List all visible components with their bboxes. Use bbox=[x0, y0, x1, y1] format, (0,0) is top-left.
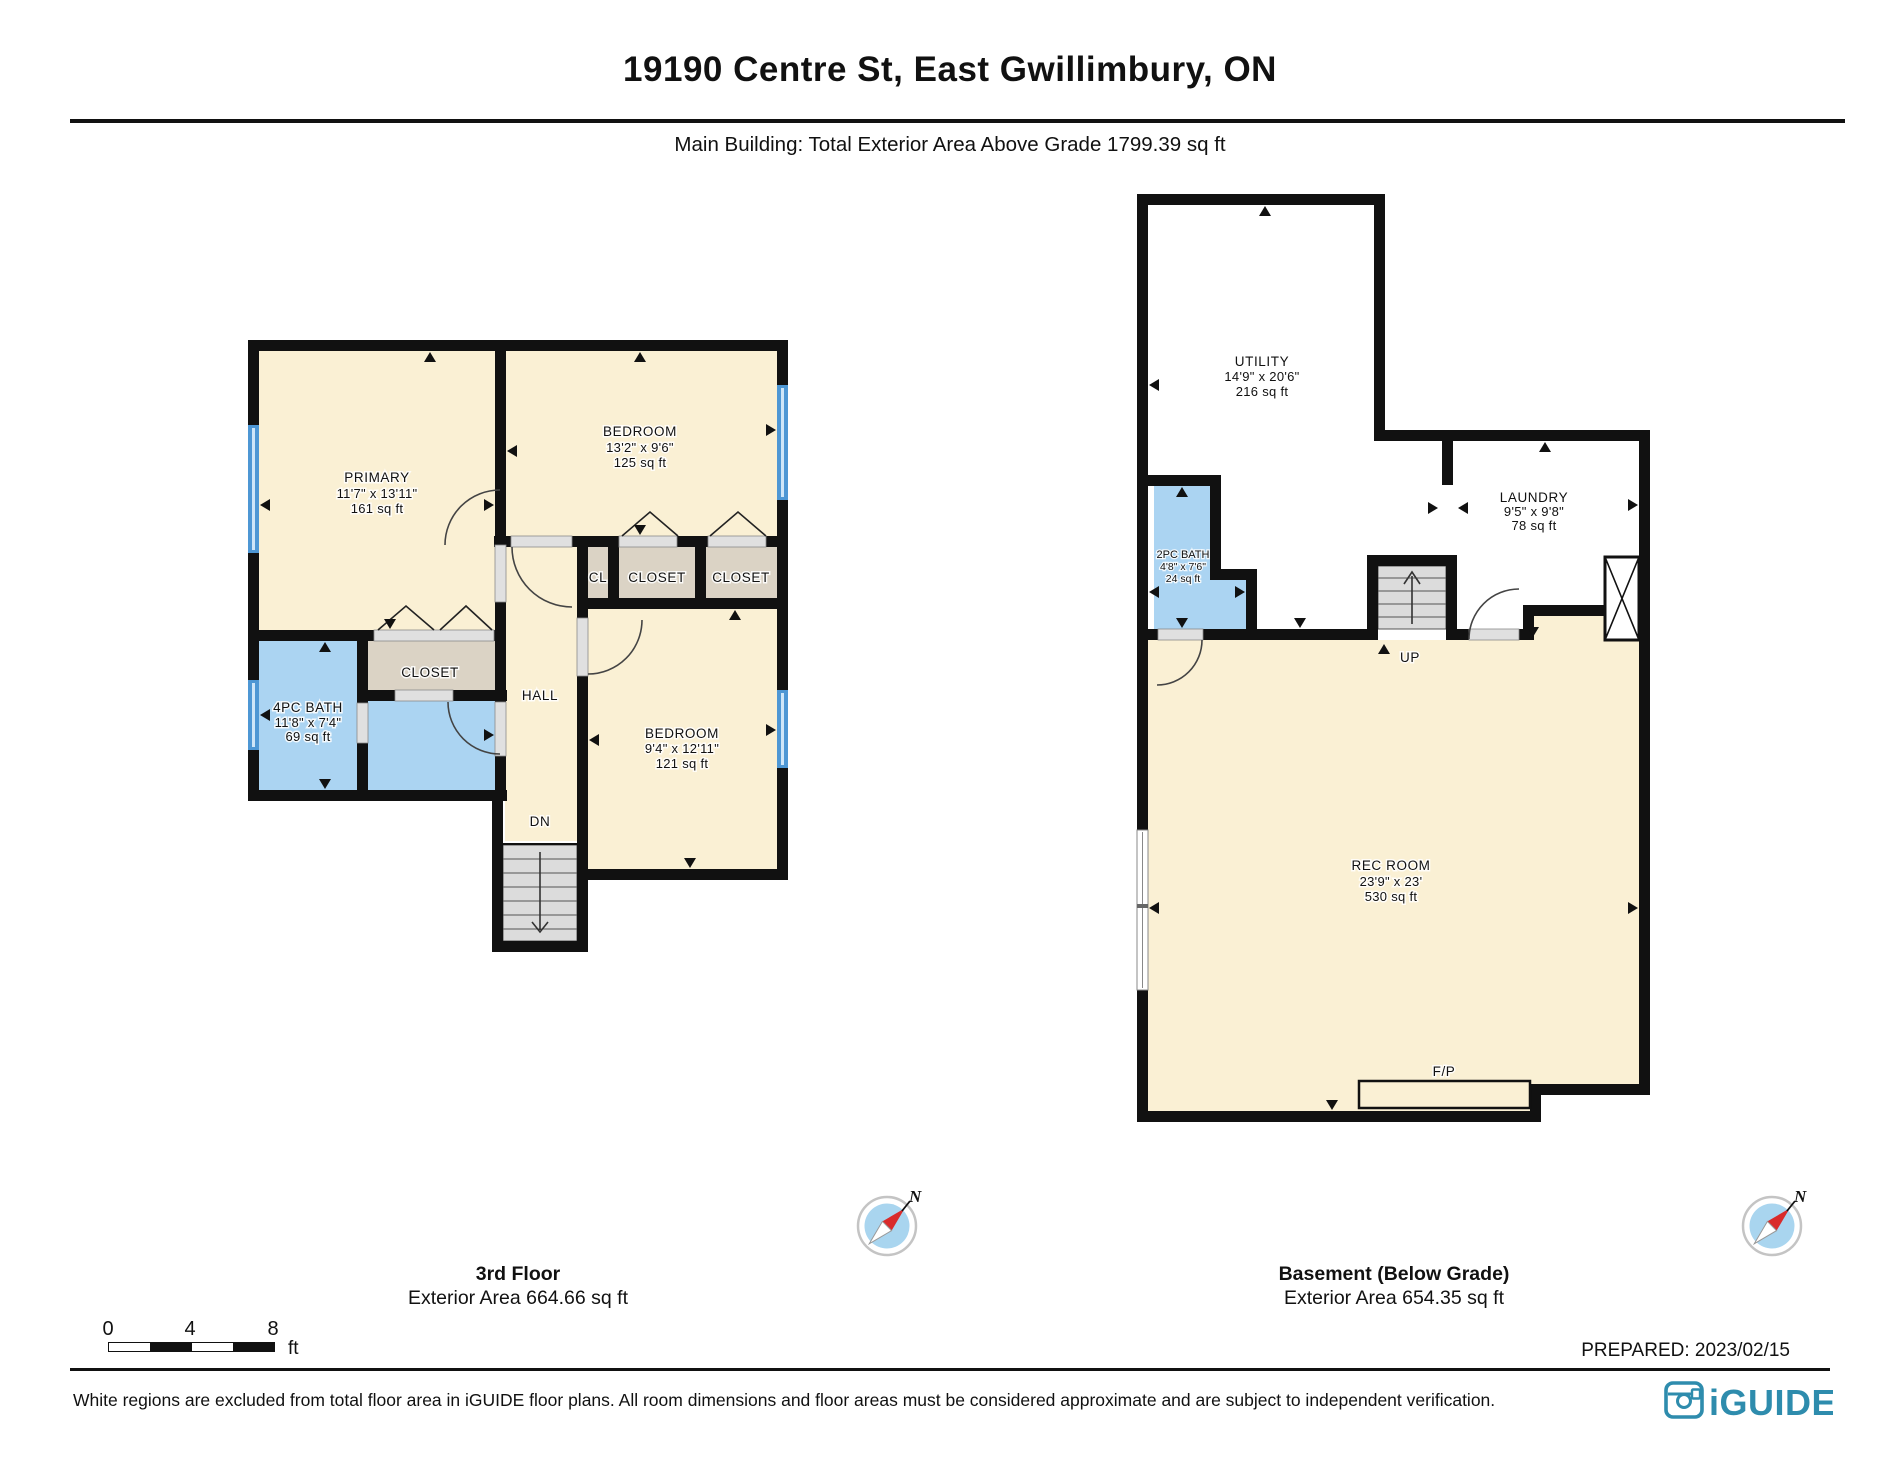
north-label: N bbox=[1793, 1187, 1807, 1206]
iguide-logo: iGUIDE bbox=[1663, 1379, 1833, 1425]
room-rec-dims: 23'9" x 23' bbox=[1360, 874, 1423, 889]
floorplan-basement: UTILITY 14'9" x 20'6" 216 sq ft LAUNDRY … bbox=[1125, 185, 1670, 1135]
page-title: 19190 Centre St, East Gwillimbury, ON bbox=[0, 50, 1900, 90]
camera-icon bbox=[1666, 1383, 1702, 1417]
room-utility-sqft: 216 sq ft bbox=[1236, 384, 1289, 399]
logo-text: iGUIDE bbox=[1709, 1382, 1833, 1423]
floorplan-page: 19190 Centre St, East Gwillimbury, ON Ma… bbox=[0, 0, 1900, 1468]
room-bedroom2-dims: 9'4" x 12'11" bbox=[645, 741, 719, 756]
room-utility-dims: 14'9" x 20'6" bbox=[1224, 369, 1299, 384]
scale-tick-4: 4 bbox=[175, 1318, 205, 1341]
room-primary-name: PRIMARY bbox=[344, 470, 409, 485]
stairs-up bbox=[1378, 566, 1446, 629]
room-bath-sqft: 69 sq ft bbox=[285, 729, 330, 744]
room-2pcbath-sqft: 24 sq ft bbox=[1166, 573, 1201, 585]
compass-icon: N bbox=[1738, 1186, 1814, 1262]
stairs-dn-label: DN bbox=[530, 814, 551, 829]
room-bedroom1-name: BEDROOM bbox=[603, 424, 677, 439]
room-laundry-dims: 9'5" x 9'8" bbox=[1504, 504, 1564, 519]
room-bath-name: 4PC BATH bbox=[273, 700, 343, 715]
room-hall-name: HALL bbox=[522, 688, 558, 703]
page-subtitle: Main Building: Total Exterior Area Above… bbox=[0, 133, 1900, 157]
header-divider bbox=[70, 119, 1845, 123]
room-laundry-name: LAUNDRY bbox=[1500, 490, 1568, 505]
scale-bar bbox=[108, 1342, 275, 1352]
shaft-xbox bbox=[1605, 557, 1639, 640]
room-bedroom2-sqft: 121 sq ft bbox=[656, 756, 709, 771]
room-primary-dims: 11'7" x 13'11" bbox=[337, 486, 418, 501]
room-rec-area2 bbox=[1534, 616, 1605, 640]
room-2pcbath-dims: 4'8" x 7'6" bbox=[1160, 561, 1206, 573]
stairs-down bbox=[503, 843, 577, 941]
prepared-date: PREPARED: 2023/02/15 bbox=[1530, 1340, 1790, 1362]
room-bedroom2-name: BEDROOM bbox=[645, 726, 719, 741]
room-bedroom1-dims: 13'2" x 9'6" bbox=[606, 440, 674, 455]
compass-icon: N bbox=[853, 1186, 929, 1262]
fireplace bbox=[1359, 1081, 1530, 1108]
floor-left-label: 3rd Floor Exterior Area 664.66 sq ft bbox=[308, 1262, 728, 1310]
room-laundry-sqft: 78 sq ft bbox=[1511, 518, 1556, 533]
floor-left-area: Exterior Area 664.66 sq ft bbox=[308, 1286, 728, 1310]
floorplan-3rd-floor: PRIMARY 11'7" x 13'11" 161 sq ft BEDROOM… bbox=[240, 330, 800, 962]
basement-window bbox=[1137, 830, 1148, 990]
room-primary-sqft: 161 sq ft bbox=[351, 501, 404, 516]
stairs-up-label: UP bbox=[1400, 650, 1420, 665]
disclaimer-text: White regions are excluded from total fl… bbox=[73, 1390, 1573, 1411]
north-label: N bbox=[908, 1187, 922, 1206]
room-closet-right-name: CLOSET bbox=[712, 570, 770, 585]
floor-right-name: Basement (Below Grade) bbox=[1184, 1262, 1604, 1286]
scale-unit: ft bbox=[288, 1338, 299, 1360]
room-2pcbath-name: 2PC BATH bbox=[1157, 549, 1210, 561]
floor-right-area: Exterior Area 654.35 sq ft bbox=[1184, 1286, 1604, 1310]
fireplace-label: F/P bbox=[1433, 1064, 1456, 1079]
room-rec-sqft: 530 sq ft bbox=[1365, 889, 1418, 904]
footer-divider bbox=[70, 1368, 1830, 1371]
room-bedroom1-sqft: 125 sq ft bbox=[614, 455, 667, 470]
room-closet-mid-name: CLOSET bbox=[628, 570, 686, 585]
scale-tick-0: 0 bbox=[93, 1318, 123, 1341]
room-rec-name: REC ROOM bbox=[1351, 858, 1430, 873]
room-bath-dims: 11'8" x 7'4" bbox=[275, 715, 342, 730]
room-utility-name: UTILITY bbox=[1235, 354, 1289, 369]
room-cl-name: CL bbox=[589, 570, 607, 585]
floor-left-name: 3rd Floor bbox=[308, 1262, 728, 1286]
room-bath2-area bbox=[368, 701, 495, 790]
floor-right-label: Basement (Below Grade) Exterior Area 654… bbox=[1184, 1262, 1604, 1310]
scale-tick-8: 8 bbox=[258, 1318, 288, 1341]
room-closet-primary-name: CLOSET bbox=[401, 665, 459, 680]
